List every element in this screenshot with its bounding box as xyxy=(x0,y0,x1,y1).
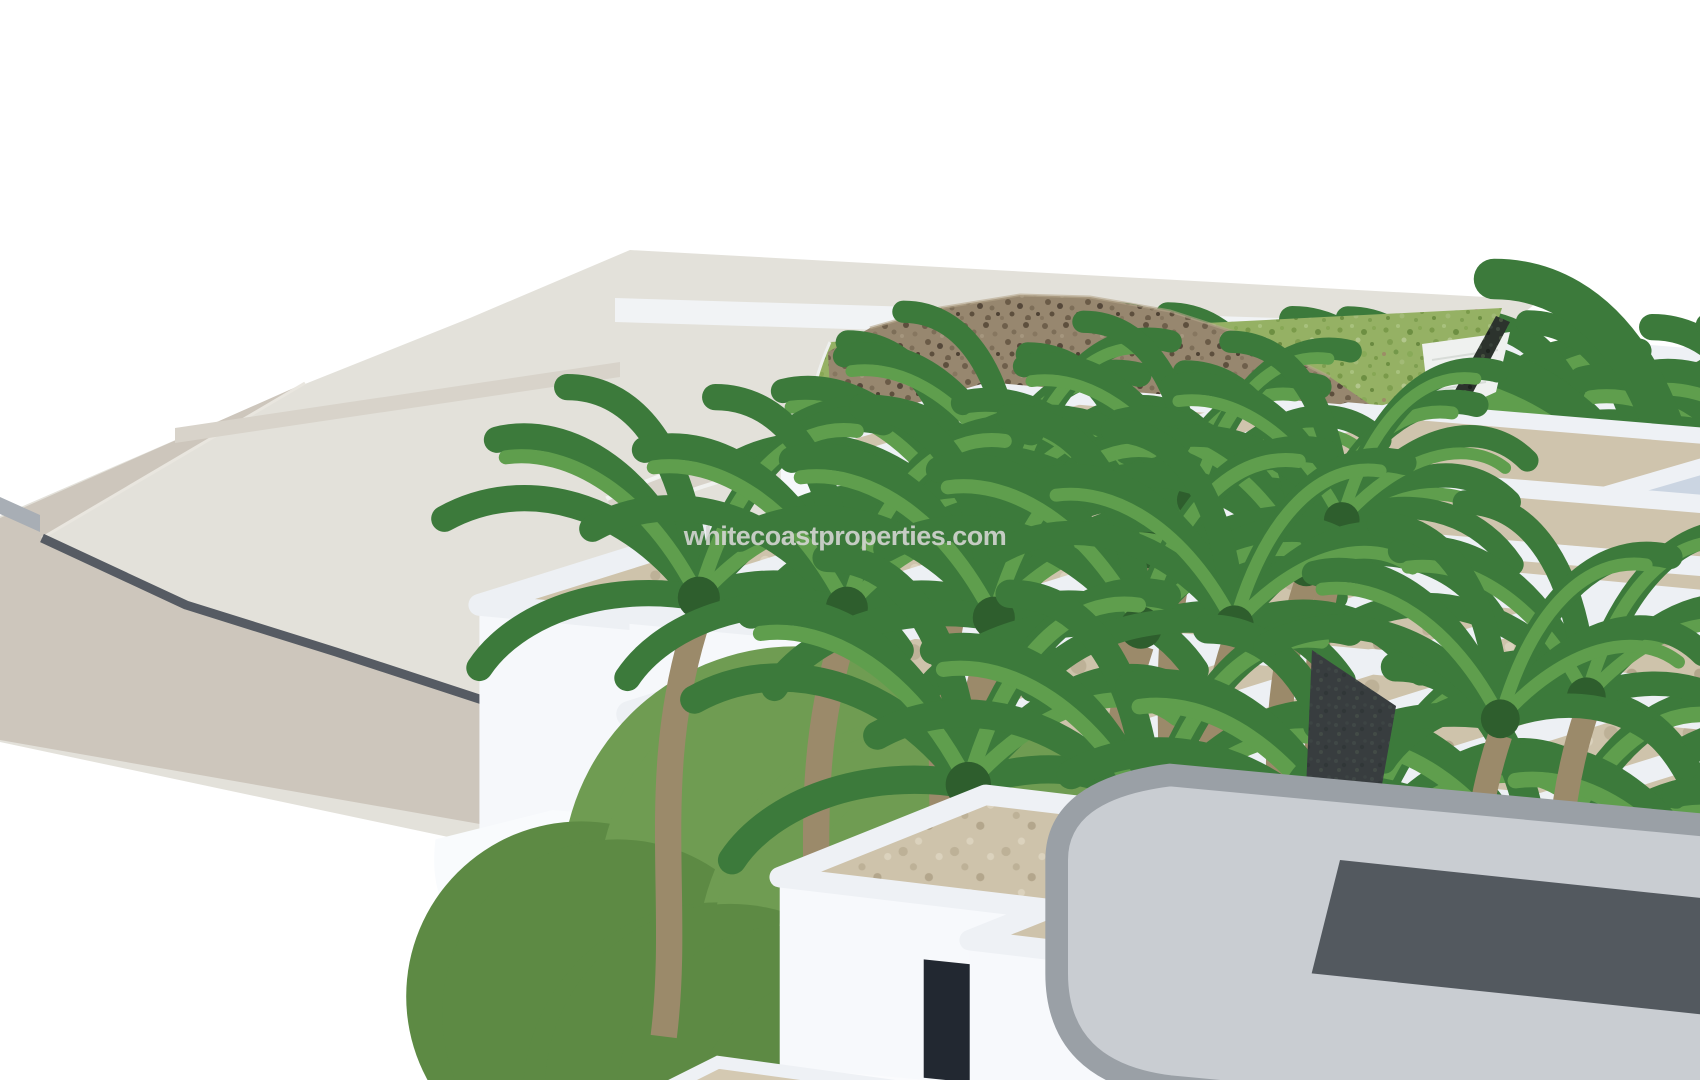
car xyxy=(1057,775,1700,1080)
aerial-render-image: whitecoastproperties.com xyxy=(0,0,1700,1080)
watermark-text: whitecoastproperties.com xyxy=(683,521,1007,551)
site-render-svg: whitecoastproperties.com xyxy=(0,0,1700,1080)
